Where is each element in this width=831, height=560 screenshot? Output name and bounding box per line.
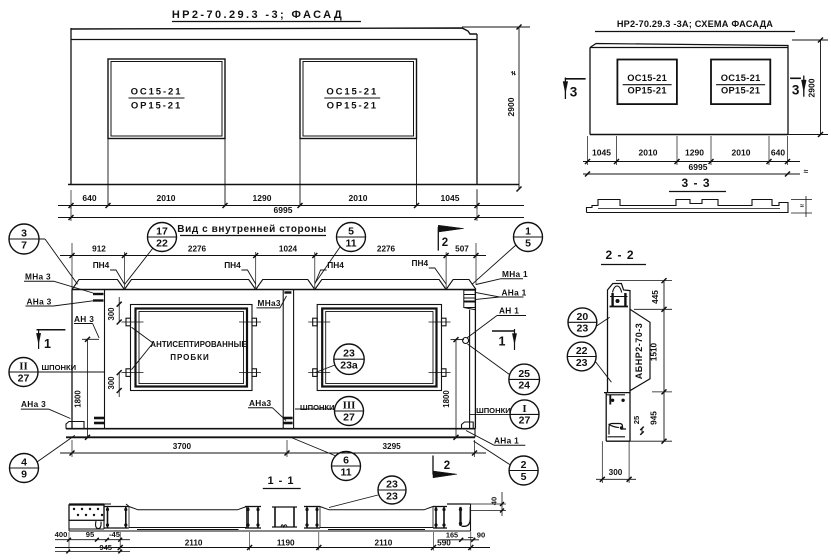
svg-text:2900: 2900	[807, 78, 817, 97]
svg-text:2010: 2010	[639, 148, 658, 158]
svg-text:23: 23	[576, 357, 588, 369]
svg-text:23: 23	[386, 490, 398, 502]
svg-text:1 - 1: 1 - 1	[267, 475, 294, 487]
svg-text:1290: 1290	[253, 193, 272, 203]
svg-text:ШПОНКИ: ШПОНКИ	[476, 406, 511, 415]
svg-text:Вид с внутренней стороны: Вид с внутренней стороны	[177, 224, 326, 235]
svg-text:9: 9	[21, 468, 27, 480]
svg-text:АНа 1: АНа 1	[494, 436, 519, 446]
svg-text:95: 95	[86, 530, 95, 539]
svg-text:6995: 6995	[689, 162, 708, 172]
svg-text:945: 945	[650, 411, 659, 425]
svg-text:1045: 1045	[441, 193, 460, 203]
svg-text:ОС15-21: ОС15-21	[326, 87, 378, 98]
svg-text:1: 1	[44, 337, 51, 351]
svg-text:1: 1	[499, 335, 506, 349]
svg-text:АНа3: АНа3	[249, 398, 271, 408]
svg-text:2110: 2110	[375, 538, 393, 547]
svg-text:1290: 1290	[685, 148, 704, 158]
svg-text:5: 5	[521, 471, 527, 483]
svg-text:АН 1: АН 1	[499, 306, 519, 316]
svg-text:640: 640	[82, 193, 96, 203]
svg-text:-45: -45	[109, 530, 121, 539]
svg-text:ПН4: ПН4	[412, 258, 429, 268]
svg-text:300: 300	[107, 307, 116, 321]
svg-text:2276: 2276	[188, 245, 207, 254]
svg-text:1045: 1045	[592, 148, 611, 158]
svg-text:ОС15-21: ОС15-21	[131, 87, 183, 98]
svg-text:2110: 2110	[185, 538, 203, 547]
svg-text:ОР15-21: ОР15-21	[721, 86, 760, 96]
svg-text:ОС15-21: ОС15-21	[721, 73, 761, 83]
svg-text:23: 23	[386, 479, 398, 491]
svg-text:АНа 1: АНа 1	[502, 287, 527, 297]
svg-text:1024: 1024	[279, 245, 298, 254]
svg-text:МНа 1: МНа 1	[502, 269, 528, 279]
svg-text:3: 3	[21, 228, 27, 240]
svg-text:НР2-70.29.3 -3; ФАСАД: НР2-70.29.3 -3; ФАСАД	[172, 9, 344, 21]
svg-text:ПРОБКИ: ПРОБКИ	[170, 353, 210, 362]
svg-text:20: 20	[577, 311, 589, 323]
svg-text:1190: 1190	[277, 538, 295, 547]
svg-text:23а: 23а	[340, 360, 358, 372]
svg-text:АНа 3: АНа 3	[21, 399, 46, 409]
svg-text:507: 507	[455, 245, 469, 254]
svg-text:1: 1	[525, 226, 531, 238]
svg-text:5: 5	[348, 226, 354, 238]
svg-text:ОР15-21: ОР15-21	[327, 101, 378, 112]
svg-text:6995: 6995	[274, 205, 293, 215]
svg-text:640: 640	[771, 148, 785, 158]
svg-text:2010: 2010	[349, 193, 368, 203]
svg-text:3700: 3700	[173, 442, 192, 451]
svg-text:945: 945	[99, 543, 112, 552]
svg-text:АНа 3: АНа 3	[27, 296, 52, 306]
svg-text:1800: 1800	[74, 390, 83, 408]
svg-text:11: 11	[345, 237, 356, 249]
svg-text:2: 2	[442, 237, 448, 249]
svg-text:III: III	[343, 400, 356, 412]
svg-text:II: II	[19, 361, 28, 373]
svg-text:3 - 3: 3 - 3	[681, 176, 710, 190]
svg-text:23: 23	[577, 323, 589, 335]
svg-text:МНа 3: МНа 3	[25, 272, 51, 282]
svg-text:40: 40	[490, 497, 499, 505]
svg-text:23: 23	[343, 348, 355, 360]
svg-text:2: 2	[521, 459, 527, 471]
svg-text:27: 27	[343, 411, 355, 423]
svg-text:400: 400	[55, 530, 68, 539]
svg-text:25: 25	[632, 415, 641, 424]
svg-text:2010: 2010	[157, 193, 176, 203]
svg-text:ОР15-21: ОР15-21	[131, 101, 182, 112]
svg-text:ШПОНКИ: ШПОНКИ	[300, 403, 335, 412]
svg-text:1800: 1800	[442, 390, 451, 408]
svg-text:2: 2	[444, 460, 450, 472]
svg-text:2276: 2276	[377, 245, 396, 254]
svg-text:≈: ≈	[800, 203, 804, 210]
svg-text:1510: 1510	[650, 342, 659, 361]
svg-text:ШПОНКИ: ШПОНКИ	[42, 363, 77, 372]
svg-text:2900: 2900	[506, 97, 516, 116]
svg-text:3: 3	[792, 83, 800, 98]
svg-text:3: 3	[570, 85, 578, 100]
svg-text:445: 445	[651, 290, 660, 304]
svg-text:ОС15-21: ОС15-21	[627, 73, 667, 83]
svg-text:25: 25	[518, 368, 530, 380]
svg-text:22: 22	[156, 237, 168, 249]
svg-text:I: I	[522, 403, 526, 415]
svg-text:ПН4: ПН4	[93, 260, 110, 270]
svg-text:≈: ≈	[804, 167, 809, 176]
svg-text:2010: 2010	[732, 148, 751, 158]
svg-text:2 - 2: 2 - 2	[605, 248, 634, 262]
svg-text:АНТИСЕПТИРОВАННЫЕ: АНТИСЕПТИРОВАННЫЕ	[150, 340, 246, 349]
svg-text:165: 165	[446, 531, 458, 540]
svg-text:НР2-70.29.3 -3А; СХЕМА ФАСАДА: НР2-70.29.3 -3А; СХЕМА ФАСАДА	[617, 19, 773, 29]
svg-text:27: 27	[519, 415, 531, 427]
svg-text:27: 27	[18, 372, 30, 384]
svg-text:300: 300	[107, 376, 116, 390]
svg-text:3295: 3295	[382, 442, 401, 451]
svg-text:ПН4: ПН4	[224, 260, 241, 270]
svg-text:5: 5	[525, 237, 531, 249]
svg-text:4: 4	[21, 457, 27, 469]
svg-text:22: 22	[576, 345, 588, 357]
svg-text:6: 6	[343, 455, 349, 467]
svg-text:912: 912	[92, 245, 106, 254]
svg-text:ОР15-21: ОР15-21	[627, 86, 666, 96]
svg-text:11: 11	[340, 466, 351, 478]
svg-text:АН 3: АН 3	[74, 314, 94, 324]
svg-text:90: 90	[477, 531, 485, 540]
svg-text:17: 17	[156, 226, 168, 238]
svg-text:АБНР2-70-3: АБНР2-70-3	[634, 323, 644, 380]
svg-text:7: 7	[21, 239, 27, 251]
svg-text:МНа3: МНа3	[258, 298, 281, 308]
svg-text:300: 300	[609, 468, 623, 477]
svg-text:≠: ≠	[509, 70, 518, 75]
svg-text:24: 24	[518, 380, 530, 392]
